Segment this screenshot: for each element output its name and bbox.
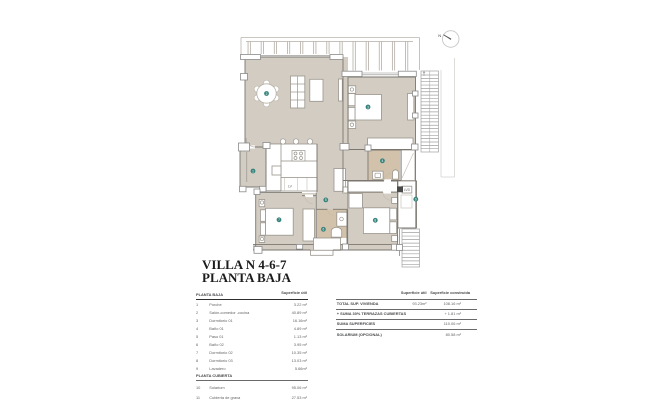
svg-text:LVD: LVD [404, 188, 411, 192]
svg-text:5: 5 [325, 198, 327, 202]
svg-text:LV: LV [288, 185, 293, 189]
svg-text:1: 1 [252, 169, 254, 173]
svg-text:7: 7 [278, 218, 280, 222]
svg-text:N: N [438, 33, 441, 38]
svg-text:2: 2 [266, 92, 268, 96]
svg-text:6: 6 [323, 228, 325, 232]
svg-text:3: 3 [367, 105, 369, 109]
svg-text:4: 4 [382, 159, 384, 163]
svg-text:8: 8 [374, 219, 376, 223]
svg-text:9: 9 [415, 198, 417, 202]
